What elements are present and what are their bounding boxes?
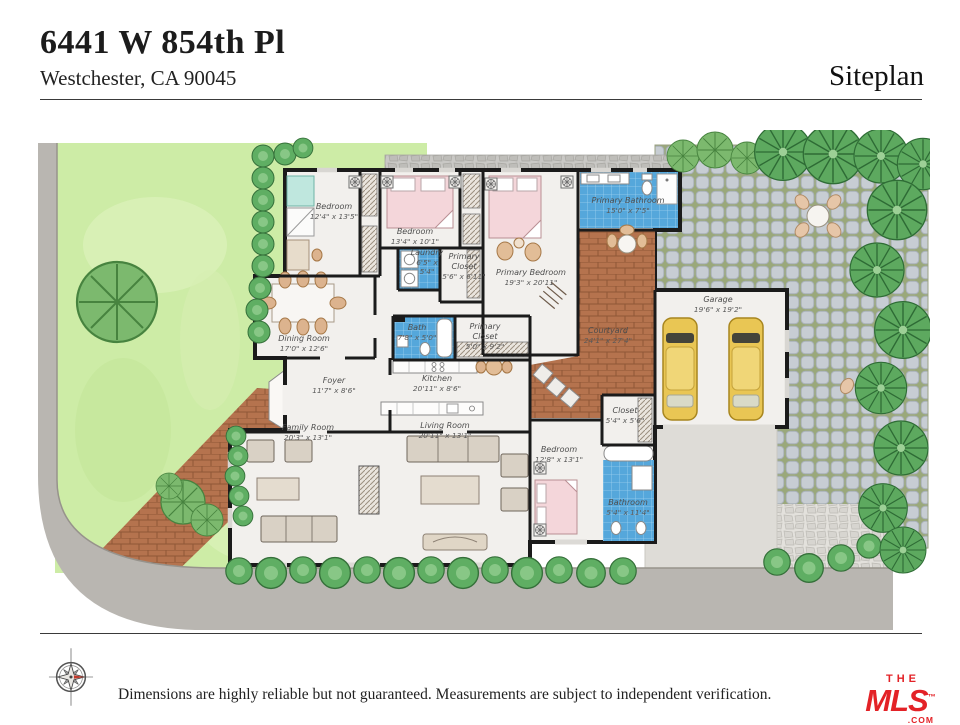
room-label-kitchen: Kitchen20'11" x 8'6" — [413, 374, 461, 393]
siteplan-graphic — [35, 130, 930, 632]
room-label-bedroom-3: Bedroom12'8" x 13'1" — [535, 445, 583, 464]
fireplace — [359, 466, 379, 514]
room-label-primary-closet-1: Primary Closet5'6" x 6'11" — [441, 252, 487, 281]
room-label-laundry: Laundry6'5" x 5'4" — [409, 248, 445, 277]
compass-icon — [48, 646, 94, 708]
room-label-closet: Closet5'4" x 5'6" — [604, 406, 646, 425]
room-label-bedroom-2: Bedroom13'4" x 10'1" — [391, 227, 439, 246]
disclaimer-text: Dimensions are highly reliable but not g… — [118, 686, 771, 704]
page-title-address: 6441 W 854th Pl — [40, 24, 285, 62]
room-label-family-room: Family Room20'3" x 13'1" — [282, 423, 334, 442]
car-left — [663, 318, 697, 420]
mls-logo-main: MLS™ — [862, 685, 938, 716]
mls-logo: THE MLS™ .COM — [862, 674, 938, 725]
room-label-foyer: Foyer11'7" x 8'6" — [312, 376, 355, 395]
room-label-bedroom-1: Bedroom12'4" x 13'5" — [310, 202, 358, 221]
car-right — [729, 318, 763, 420]
plan-type-label: Siteplan — [829, 60, 924, 93]
bed-bedroom-2 — [387, 176, 453, 228]
room-label-garage: Garage19'6" x 19'2" — [694, 295, 742, 314]
room-label-primary-closet-2: Primary Closet5'0" x 9'2" — [457, 322, 513, 351]
driveway — [645, 427, 777, 568]
header-divider — [40, 99, 922, 100]
footer-divider — [40, 633, 922, 634]
room-label-primary-bathroom: Primary Bathroom15'0" x 7'5" — [591, 196, 664, 215]
room-label-primary-bedroom: Primary Bedroom19'3" x 20'11" — [496, 268, 566, 287]
room-label-courtyard: Courtyard24'1" x 27'4" — [584, 326, 632, 345]
room-label-living-room: Living Room20'11" x 13'1" — [419, 421, 472, 440]
room-label-dining-room: Dining Room17'0" x 12'6" — [278, 334, 330, 353]
room-label-bath: Bath7'8" x 5'0" — [397, 323, 437, 342]
room-label-bathroom: Bathroom5'4" x 11'4" — [604, 498, 652, 517]
siteplan-canvas: Bedroom12'4" x 13'5" Bedroom13'4" x 10'1… — [35, 130, 930, 632]
page-subtitle-city: Westchester, CA 90045 — [40, 66, 236, 91]
